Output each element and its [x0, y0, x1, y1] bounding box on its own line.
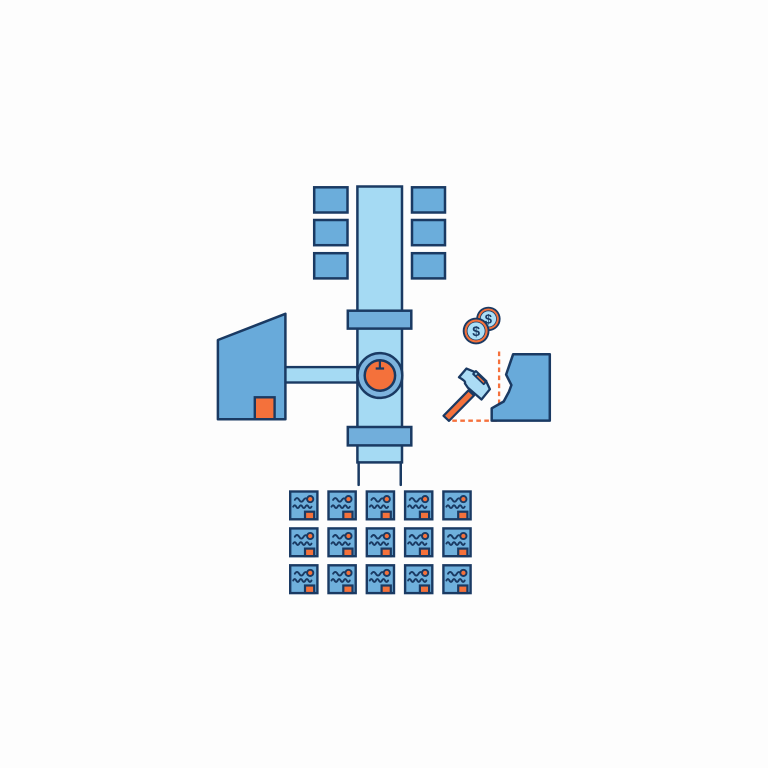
svg-text:$: $: [472, 323, 480, 339]
